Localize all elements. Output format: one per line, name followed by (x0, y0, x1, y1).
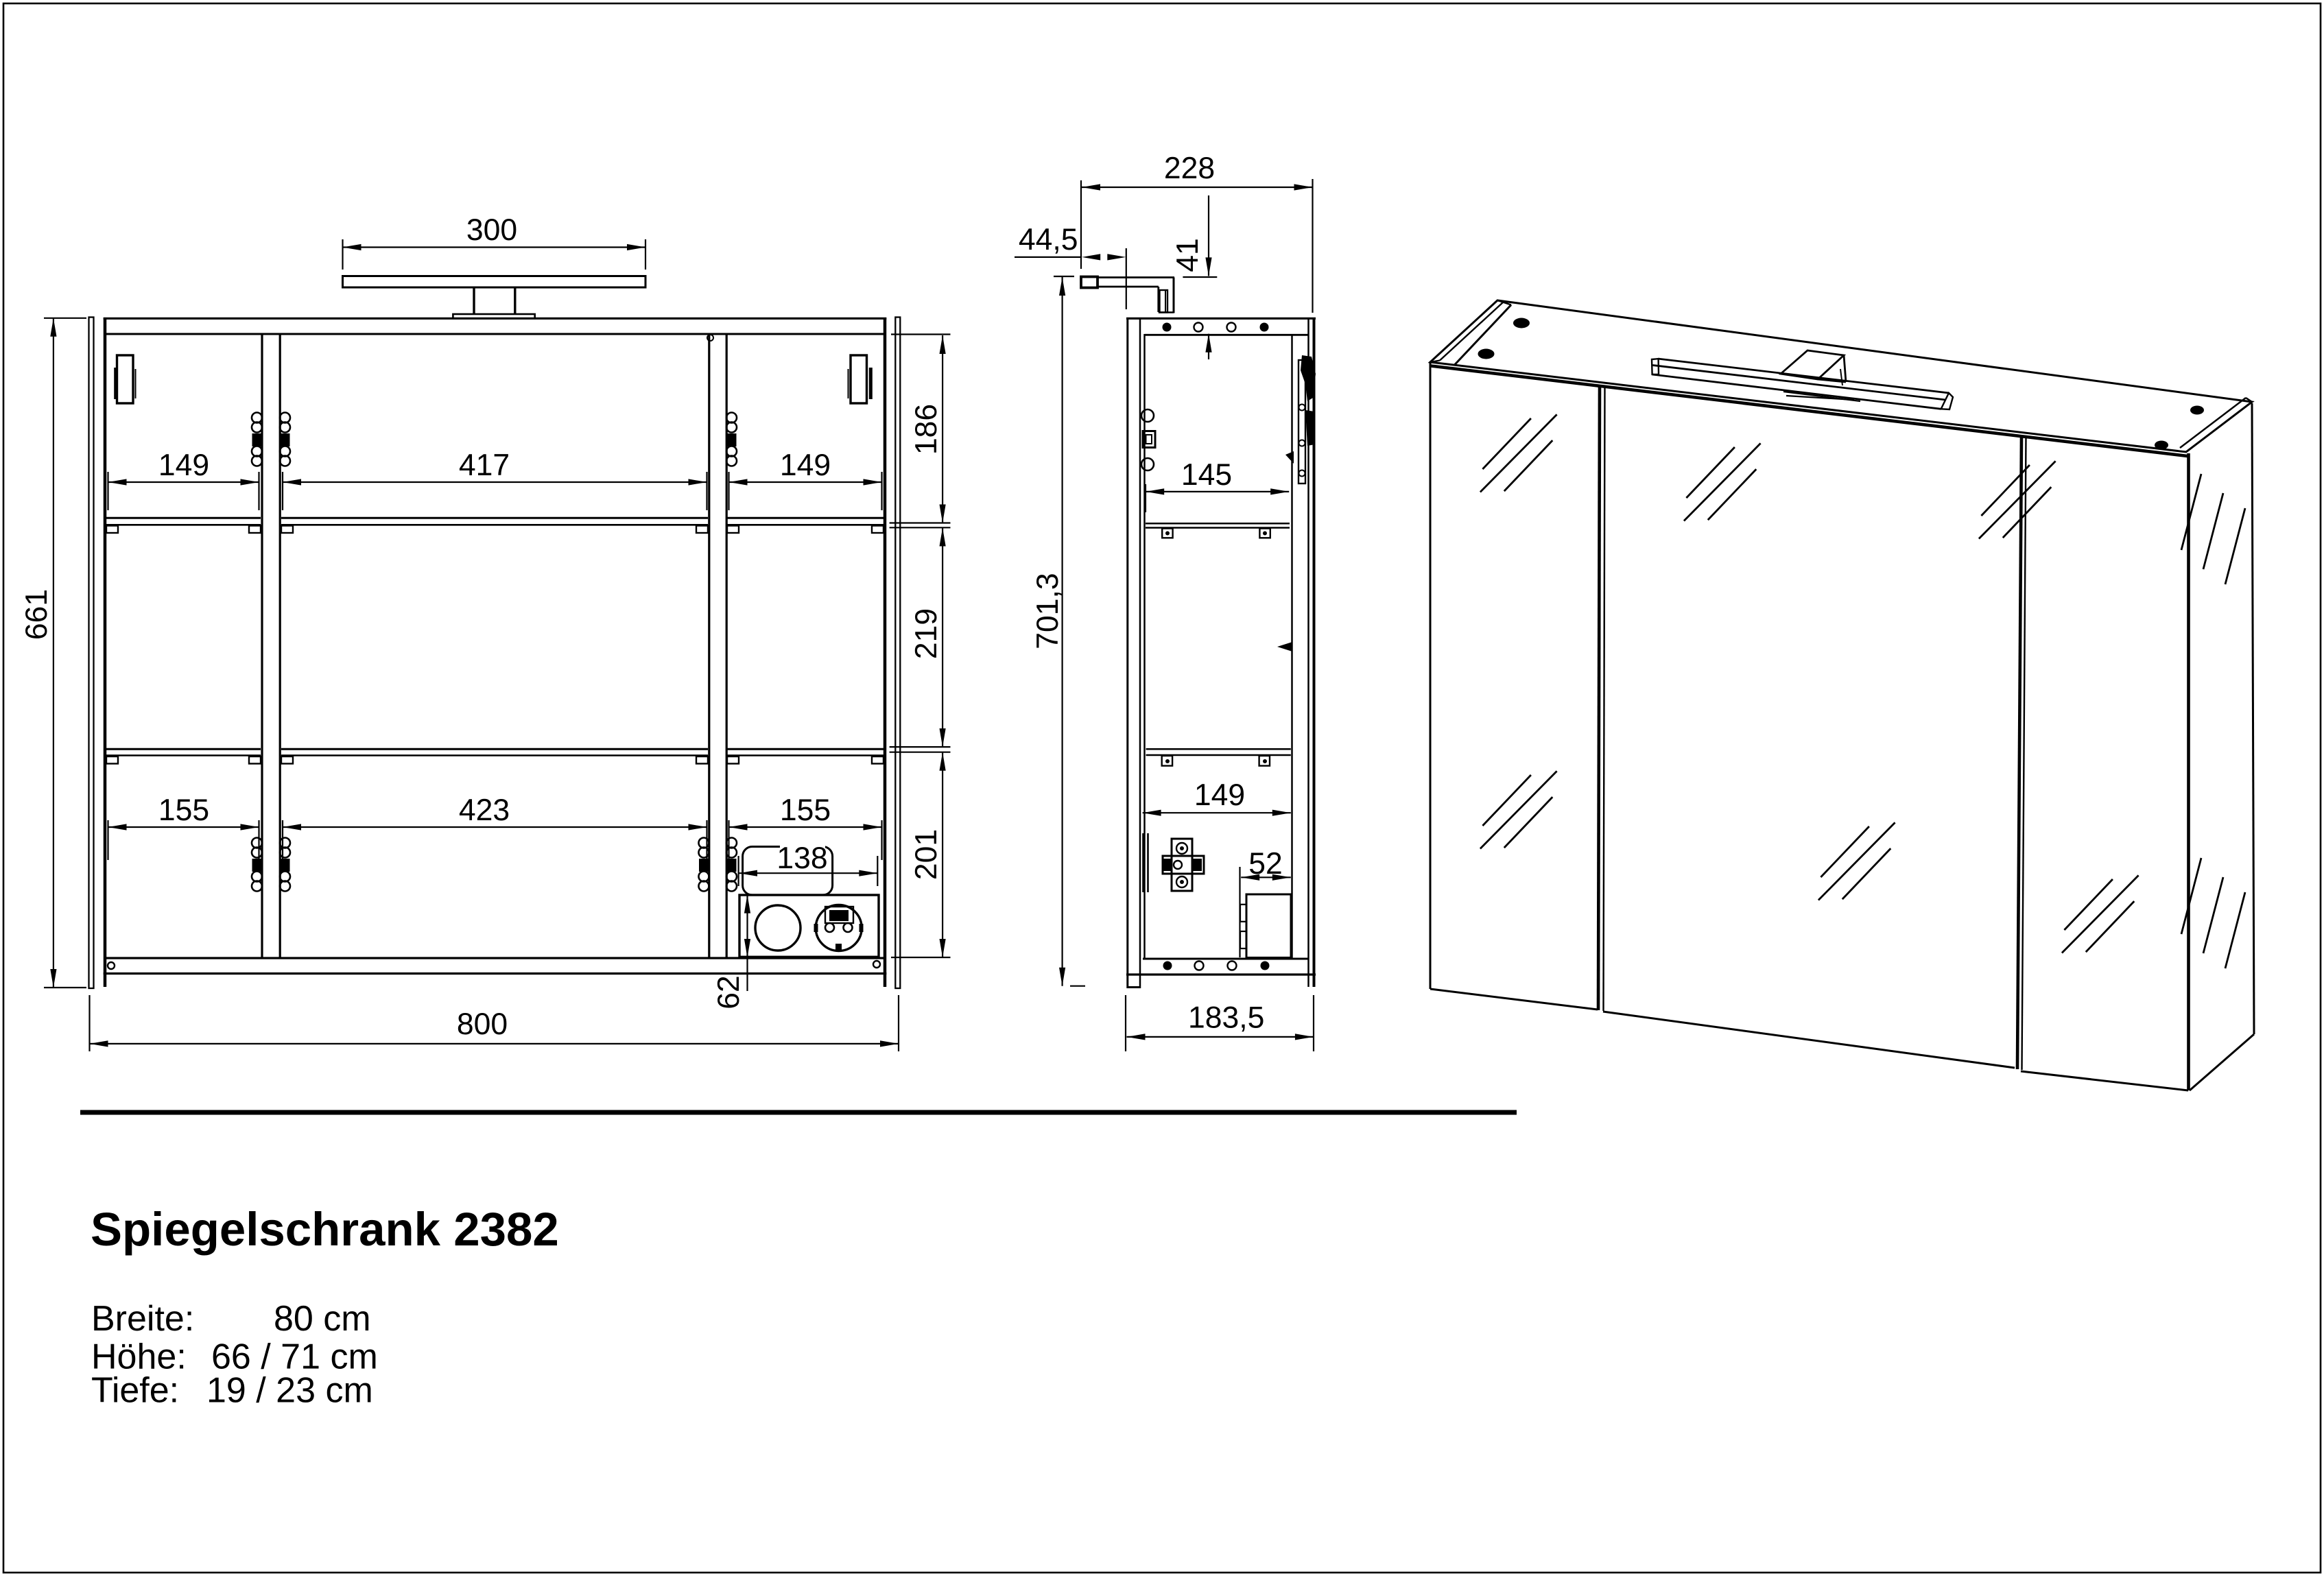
svg-text:417: 417 (459, 449, 510, 482)
svg-text:228: 228 (1164, 152, 1215, 185)
svg-text:701,3: 701,3 (1031, 573, 1065, 649)
svg-text:44,5: 44,5 (1019, 223, 1078, 256)
svg-text:145: 145 (1181, 458, 1232, 492)
svg-text:219: 219 (910, 608, 943, 659)
svg-text:149: 149 (158, 449, 209, 482)
svg-text:80 cm: 80 cm (274, 1299, 371, 1339)
svg-text:201: 201 (910, 829, 943, 880)
svg-text:Breite:: Breite: (91, 1299, 194, 1339)
svg-text:186: 186 (910, 404, 943, 455)
svg-text:Spiegelschrank 2382: Spiegelschrank 2382 (91, 1203, 559, 1256)
svg-text:800: 800 (457, 1007, 508, 1041)
svg-text:138: 138 (776, 841, 827, 875)
svg-text:149: 149 (1194, 778, 1245, 812)
svg-text:149: 149 (780, 449, 831, 482)
svg-text:41: 41 (1171, 238, 1205, 272)
svg-text:Tiefe:: Tiefe: (91, 1371, 179, 1411)
svg-text:155: 155 (780, 793, 831, 827)
svg-text:52: 52 (1248, 847, 1283, 881)
svg-text:62: 62 (712, 975, 746, 1010)
svg-text:661: 661 (20, 589, 54, 640)
svg-text:300: 300 (466, 213, 517, 247)
svg-text:155: 155 (158, 793, 209, 827)
svg-text:183,5: 183,5 (1188, 1001, 1264, 1035)
svg-text:423: 423 (459, 793, 510, 827)
svg-text:19 / 23 cm: 19 / 23 cm (206, 1371, 373, 1411)
